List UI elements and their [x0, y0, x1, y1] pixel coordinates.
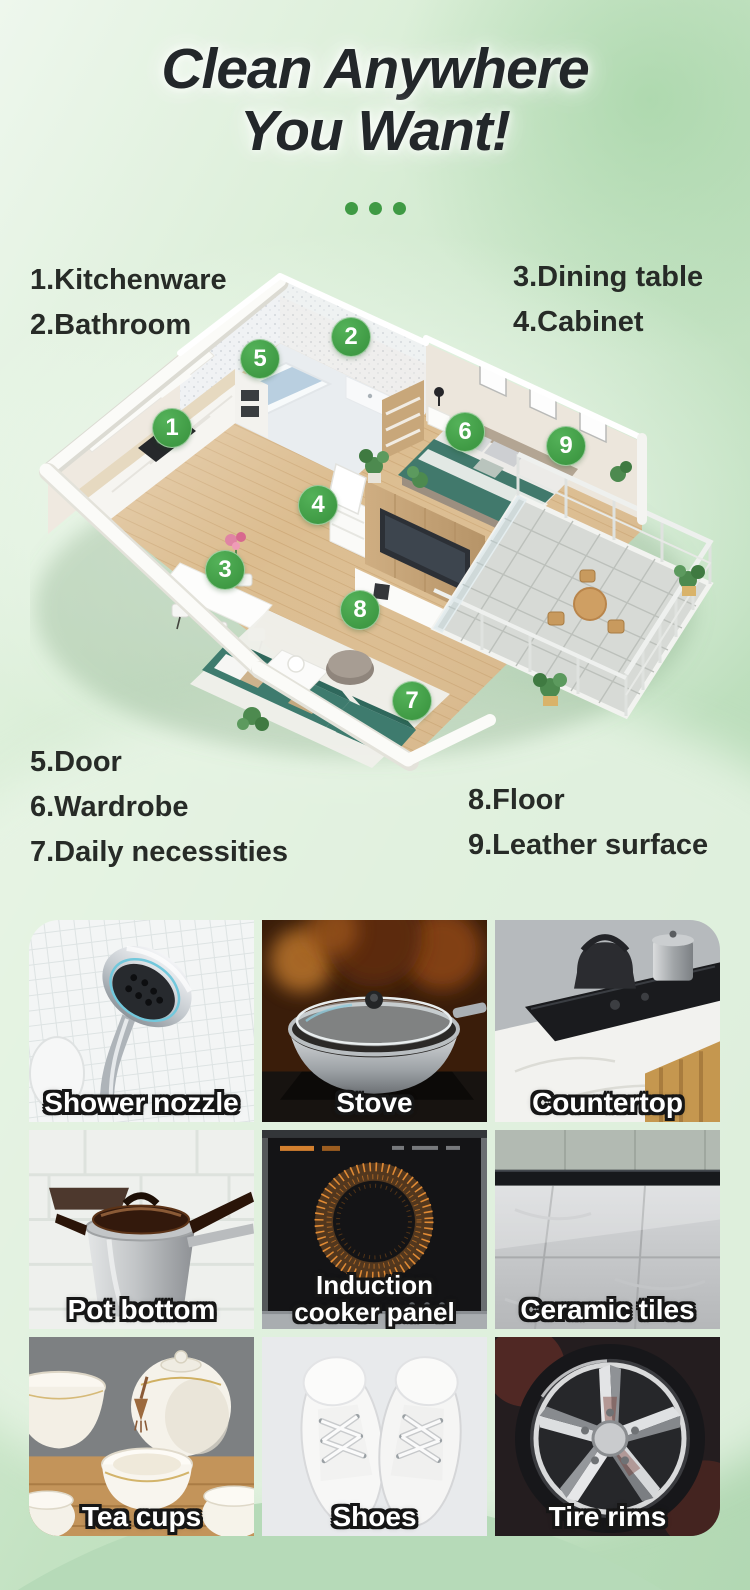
photo-tile-stove: Stove: [262, 920, 487, 1122]
title-dots-icon: [0, 202, 750, 215]
photo-grid: Shower nozzle: [29, 920, 720, 1536]
photo-caption: Pot bottom: [29, 1295, 254, 1324]
photo-tile-tea-cups: Tea cups: [29, 1337, 254, 1536]
photo-tile-tire-rims: Tire rims: [495, 1337, 720, 1536]
photo-tile-shoes: Shoes: [262, 1337, 487, 1536]
photo-caption: Tea cups: [29, 1502, 254, 1531]
photo-tile-ceramic-tiles: Ceramic tiles: [495, 1130, 720, 1329]
photo-tile-countertop: Countertop: [495, 920, 720, 1122]
photo-tile-induction-cooker-panel: Induction cooker panel: [262, 1130, 487, 1329]
page-title: Clean Anywhere You Want!: [0, 38, 750, 162]
photo-caption: Countertop: [495, 1088, 720, 1117]
photo-tile-pot-bottom: Pot bottom: [29, 1130, 254, 1329]
photo-caption: Ceramic tiles: [495, 1295, 720, 1324]
photo-caption: Tire rims: [495, 1502, 720, 1531]
photo-caption: Induction cooker panel: [262, 1272, 487, 1326]
photo-caption: Shoes: [262, 1502, 487, 1531]
legend-item: 9.Leather surface: [468, 823, 708, 868]
promo-page: Clean Anywhere You Want! 1.Kitchenware 2…: [0, 0, 750, 1590]
floorplan-illustration: [30, 268, 730, 788]
legend-item: 6.Wardrobe: [30, 785, 288, 830]
photo-caption: Stove: [262, 1088, 487, 1117]
page-title-line2: You Want!: [0, 100, 750, 162]
legend-bottom-right: 8.Floor 9.Leather surface: [468, 778, 708, 868]
legend-item: 7.Daily necessities: [30, 830, 288, 875]
photo-caption: Shower nozzle: [29, 1088, 254, 1117]
page-title-line1: Clean Anywhere: [0, 38, 750, 100]
photo-tile-shower-nozzle: Shower nozzle: [29, 920, 254, 1122]
